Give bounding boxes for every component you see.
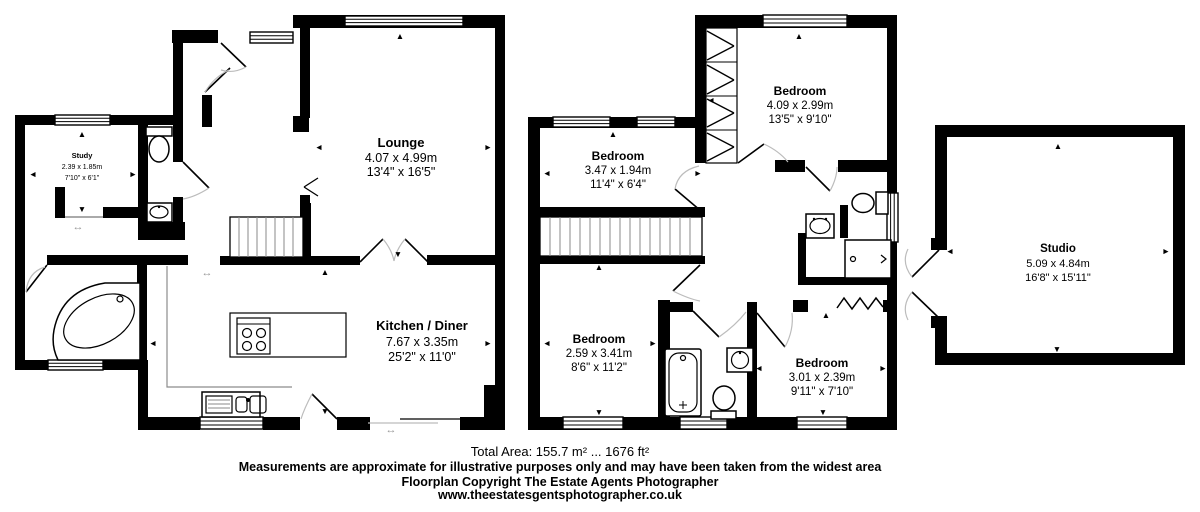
arrow-icon: ► — [649, 338, 657, 348]
window — [200, 417, 263, 429]
room-name: Kitchen / Diner — [376, 318, 468, 333]
window — [563, 417, 623, 429]
arrow-icon: ► — [484, 338, 492, 348]
arrow-icon: ◄ — [543, 168, 551, 178]
copyright-text: Floorplan Copyright The Estate Agents Ph… — [402, 475, 719, 489]
room-label-studio: Studio 5.09 x 4.84m 16'8" x 15'11" — [1025, 243, 1091, 284]
room-label-bedroom2: Bedroom 4.09 x 2.99m 13'5" x 9'10" — [767, 84, 833, 126]
window — [345, 16, 463, 26]
toilet-icon — [852, 192, 888, 214]
room-label-bedroom1: Bedroom 3.47 x 1.94m 11'4" x 6'4" — [585, 149, 651, 191]
arrow-icon: ◄ — [755, 363, 763, 373]
room-label-bedroom4: Bedroom 3.01 x 2.39m 9'11" x 7'10" — [789, 356, 855, 398]
stairs — [540, 217, 702, 256]
arrow-icon: ▼ — [595, 407, 603, 417]
room-dim-metric: 7.67 x 3.35m — [386, 335, 458, 349]
arrow-icon: ↔ — [73, 221, 84, 233]
room-label-bedroom3: Bedroom 2.59 x 3.41m 8'6" x 11'2" — [566, 332, 632, 374]
window — [553, 117, 610, 127]
footer: Total Area: 155.7 m² ... 1676 ft² Measur… — [239, 444, 883, 502]
room-name: Bedroom — [774, 84, 827, 98]
arrow-icon: ◄ — [946, 246, 954, 256]
arrow-icon: ◄ — [29, 169, 37, 179]
arrow-icon: ▲ — [595, 262, 603, 272]
window — [55, 115, 110, 125]
arrow-icon: ▲ — [78, 129, 86, 139]
room-dim-imperial: 9'11" x 7'10" — [791, 386, 853, 398]
kitchen-island-icon — [230, 313, 346, 357]
room-label-study: Study 2.39 x 1.85m 7'10" x 6'1" — [62, 151, 103, 182]
arrow-icon: ▲ — [795, 31, 803, 41]
room-dim-metric: 3.47 x 1.94m — [585, 165, 651, 177]
floorplan-image: Study 2.39 x 1.85m 7'10" x 6'1" Lounge 4… — [0, 0, 1200, 512]
room-dim-metric: 4.09 x 2.99m — [767, 100, 833, 112]
arrow-icon: ↔ — [386, 424, 397, 436]
room-dim-metric: 2.39 x 1.85m — [62, 164, 103, 171]
room-dim-metric: 3.01 x 2.39m — [789, 372, 855, 384]
arrow-icon: ► — [694, 168, 702, 178]
room-dim-imperial: 7'10" x 6'1" — [65, 175, 100, 182]
window — [797, 417, 847, 429]
toilet-icon — [711, 386, 736, 419]
stairs — [230, 217, 303, 257]
room-name: Lounge — [378, 135, 425, 150]
room-dim-imperial: 11'4" x 6'4" — [590, 179, 646, 191]
opening-zigzag — [837, 298, 883, 309]
sink-icon — [727, 348, 753, 372]
window — [637, 117, 675, 127]
arrow-icon: ◄ — [149, 338, 157, 348]
arrow-icon: ▼ — [819, 407, 827, 417]
window — [763, 15, 847, 27]
window — [250, 32, 293, 43]
bath-icon — [665, 349, 701, 416]
kitchen-sink-icon — [202, 392, 266, 417]
room-name: Studio — [1040, 243, 1076, 255]
sink-icon — [806, 214, 834, 238]
arrow-icon: ↔ — [202, 267, 213, 279]
arrow-icon: ◄ — [315, 142, 323, 152]
disclaimer-text: Measurements are approximate for illustr… — [239, 460, 883, 474]
total-area-text: Total Area: 155.7 m² ... 1676 ft² — [471, 444, 650, 459]
bath-icon — [53, 283, 143, 360]
shower-icon — [845, 240, 891, 278]
arrow-icon: ▼ — [795, 160, 803, 170]
room-dim-metric: 4.07 x 4.99m — [365, 151, 437, 165]
room-name: Bedroom — [592, 149, 645, 163]
sink-icon — [147, 203, 172, 222]
floorplan-page: Study 2.39 x 1.85m 7'10" x 6'1" Lounge 4… — [0, 0, 1200, 512]
room-dim-imperial: 25'2" x 11'0" — [388, 350, 456, 364]
room-dim-imperial: 13'5" x 9'10" — [768, 114, 831, 126]
window — [48, 360, 103, 370]
room-dim-metric: 2.59 x 3.41m — [566, 348, 632, 360]
arrow-icon: ► — [1162, 246, 1170, 256]
arrow-icon: ► — [129, 169, 137, 179]
arrow-icon: ▲ — [321, 267, 329, 277]
website-text: www.theestatesgentsphotographer.co.uk — [437, 488, 682, 502]
room-dim-imperial: 16'8" x 15'11" — [1025, 272, 1091, 284]
arrow-icon: ► — [886, 95, 894, 105]
studio-plan: Studio 5.09 x 4.84m 16'8" x 15'11" ▲ ▼ ◄… — [905, 125, 1185, 365]
first-floor-plan: Bedroom 3.47 x 1.94m 11'4" x 6'4" Bedroo… — [528, 15, 898, 430]
room-name: Study — [72, 151, 94, 160]
arrow-icon: ▼ — [394, 249, 402, 259]
toilet-icon — [146, 127, 172, 162]
arrow-icon: ▲ — [822, 310, 830, 320]
doors — [905, 249, 939, 320]
arrow-icon: ► — [879, 363, 887, 373]
room-name: Bedroom — [796, 356, 849, 370]
room-dim-imperial: 8'6" x 11'2" — [571, 362, 627, 374]
ground-floor-plan: Study 2.39 x 1.85m 7'10" x 6'1" Lounge 4… — [15, 15, 505, 436]
room-dim-metric: 5.09 x 4.84m — [1026, 258, 1090, 270]
arrow-icon: ▲ — [396, 31, 404, 41]
arrow-icon: ► — [484, 142, 492, 152]
arrow-icon: ◄ — [543, 338, 551, 348]
room-dim-imperial: 13'4" x 16'5" — [367, 165, 436, 179]
arrow-icon: ▲ — [609, 129, 617, 139]
arrow-icon: ▼ — [1053, 344, 1061, 354]
room-label-kitchen: Kitchen / Diner 7.67 x 3.35m 25'2" x 11'… — [376, 318, 468, 364]
arrow-icon: ▼ — [613, 206, 621, 216]
arrow-icon: ▲ — [1054, 141, 1062, 151]
room-name: Bedroom — [573, 332, 626, 346]
arrow-icon: ▼ — [321, 406, 329, 416]
arrow-icon: ▼ — [78, 204, 86, 214]
room-label-lounge: Lounge 4.07 x 4.99m 13'4" x 16'5" — [365, 135, 437, 179]
arrow-icon: ◄ — [707, 95, 715, 105]
